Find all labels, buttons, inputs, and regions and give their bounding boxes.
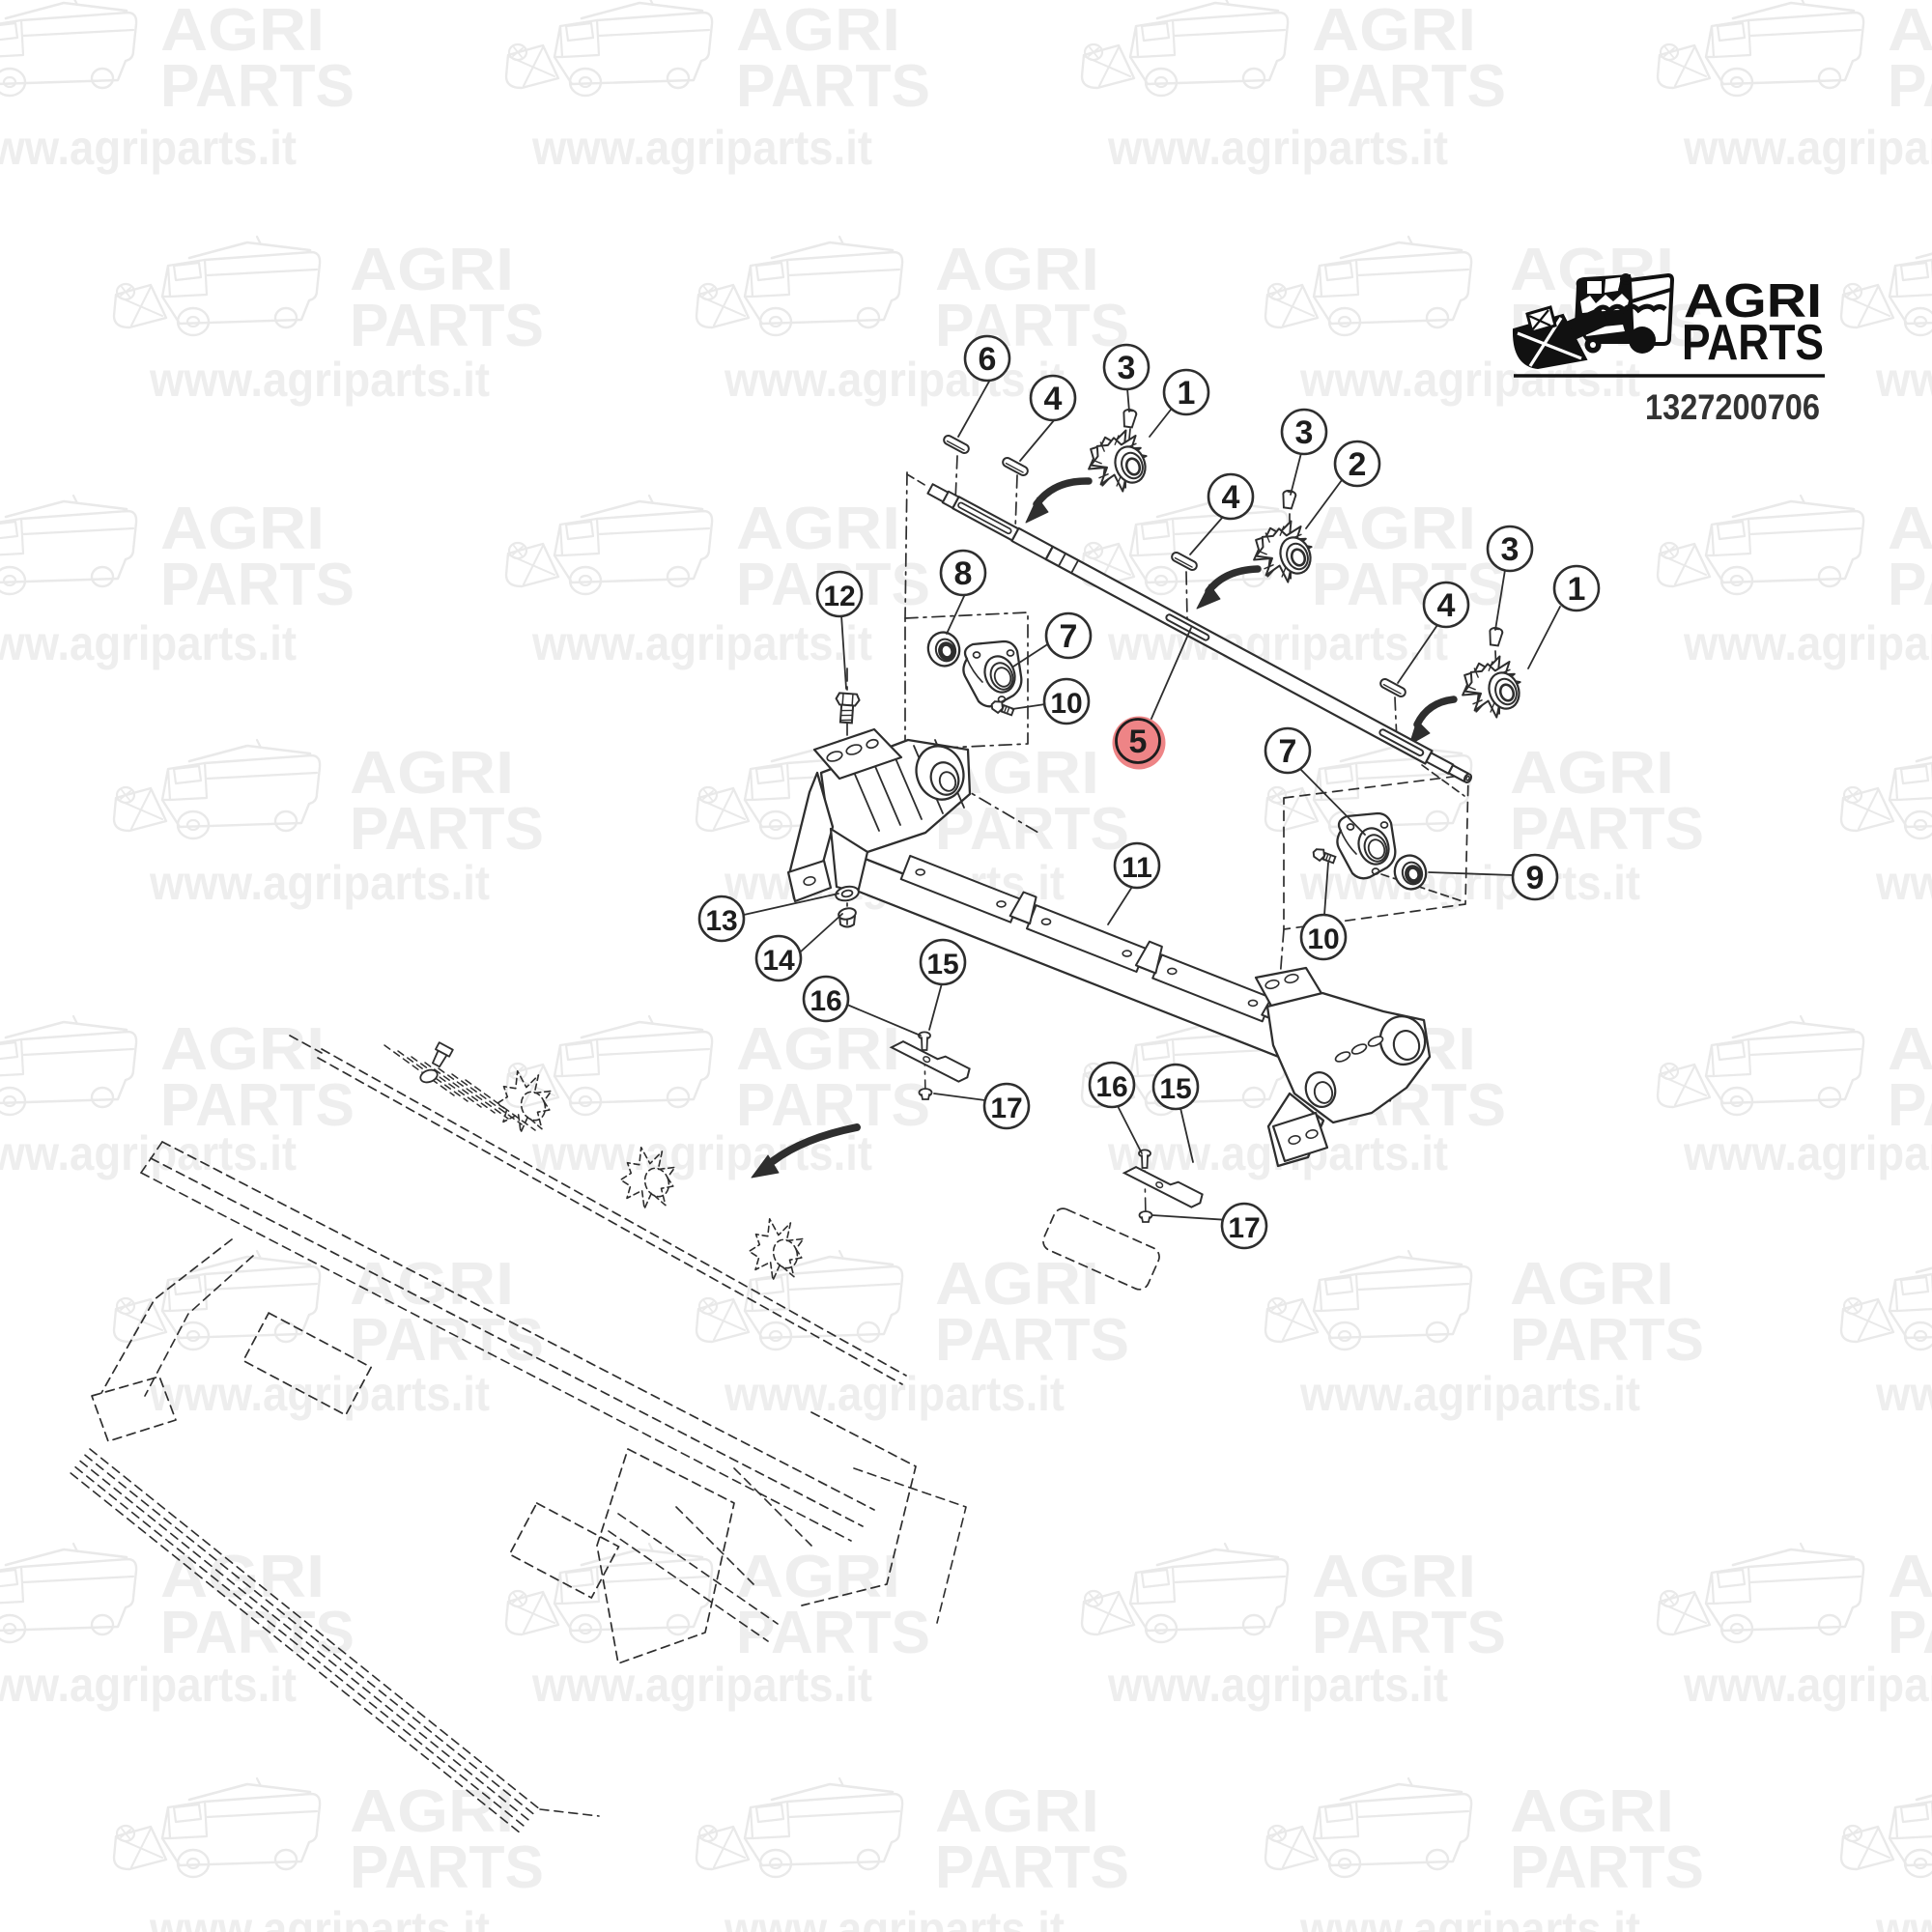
svg-text:www.agriparts.it: www.agriparts.it — [149, 1367, 490, 1421]
svg-text:www.agriparts.it: www.agriparts.it — [1107, 1658, 1448, 1712]
svg-text:www.agriparts.it: www.agriparts.it — [0, 1658, 297, 1712]
svg-text:15: 15 — [926, 949, 958, 980]
svg-text:PARTS: PARTS — [1510, 796, 1704, 863]
svg-text:5: 5 — [1129, 724, 1148, 760]
svg-text:16: 16 — [1095, 1071, 1127, 1103]
svg-text:www.agriparts.it: www.agriparts.it — [149, 353, 490, 407]
svg-text:PARTS: PARTS — [1312, 552, 1506, 618]
svg-text:www.agriparts.it: www.agriparts.it — [1683, 616, 1932, 670]
svg-text:2: 2 — [1349, 446, 1367, 483]
svg-text:www.agriparts.it: www.agriparts.it — [149, 856, 490, 910]
svg-text:7: 7 — [1279, 733, 1297, 770]
svg-text:8: 8 — [954, 555, 973, 592]
svg-text:17: 17 — [990, 1093, 1022, 1124]
svg-text:PARTS: PARTS — [1510, 1834, 1704, 1901]
svg-text:PARTS: PARTS — [160, 1600, 355, 1666]
svg-text:www.agriparts.it: www.agriparts.it — [1875, 856, 1932, 910]
svg-text:10: 10 — [1050, 688, 1082, 720]
svg-text:15: 15 — [1159, 1073, 1191, 1105]
svg-text:www.agriparts.it: www.agriparts.it — [0, 1126, 297, 1180]
svg-text:www.agriparts.it: www.agriparts.it — [531, 121, 872, 175]
svg-text:www.agriparts.it: www.agriparts.it — [1875, 1367, 1932, 1421]
svg-text:PARTS: PARTS — [935, 1834, 1129, 1901]
svg-text:PARTS: PARTS — [1888, 53, 1932, 120]
svg-text:PARTS: PARTS — [1888, 1600, 1932, 1666]
svg-text:PARTS: PARTS — [736, 1600, 930, 1666]
svg-text:16: 16 — [810, 985, 841, 1017]
svg-text:www.agriparts.it: www.agriparts.it — [1683, 1658, 1932, 1712]
svg-text:PARTS: PARTS — [1888, 552, 1932, 618]
svg-text:6: 6 — [979, 341, 997, 378]
svg-text:12: 12 — [823, 581, 855, 612]
svg-text:www.agriparts.it: www.agriparts.it — [1299, 1367, 1640, 1421]
svg-text:PARTS: PARTS — [160, 552, 355, 618]
svg-text:www.agriparts.it: www.agriparts.it — [1299, 353, 1640, 407]
svg-text:11: 11 — [1122, 852, 1152, 884]
svg-text:www.agriparts.it: www.agriparts.it — [0, 121, 297, 175]
svg-text:www.agriparts.it: www.agriparts.it — [0, 616, 297, 670]
svg-text:PARTS: PARTS — [350, 1307, 544, 1374]
svg-text:PARTS: PARTS — [1682, 315, 1824, 371]
svg-text:3: 3 — [1295, 414, 1314, 451]
svg-text:13: 13 — [705, 905, 737, 937]
svg-text:www.agriparts.it: www.agriparts.it — [724, 353, 1065, 407]
svg-text:www.agriparts.it: www.agriparts.it — [1875, 1902, 1932, 1932]
svg-text:www.agriparts.it: www.agriparts.it — [531, 1658, 872, 1712]
svg-text:www.agriparts.it: www.agriparts.it — [724, 1902, 1065, 1932]
svg-text:7: 7 — [1060, 618, 1078, 655]
svg-text:www.agriparts.it: www.agriparts.it — [1299, 1902, 1640, 1932]
svg-text:17: 17 — [1228, 1212, 1260, 1244]
svg-text:www.agriparts.it: www.agriparts.it — [1107, 616, 1448, 670]
svg-text:1327200706: 1327200706 — [1645, 387, 1820, 427]
svg-text:PARTS: PARTS — [160, 53, 355, 120]
svg-text:www.agriparts.it: www.agriparts.it — [1107, 121, 1448, 175]
svg-text:14: 14 — [762, 945, 795, 977]
svg-text:www.agriparts.it: www.agriparts.it — [724, 1367, 1065, 1421]
svg-text:PARTS: PARTS — [736, 53, 930, 120]
svg-text:PARTS: PARTS — [350, 796, 544, 863]
svg-text:PARTS: PARTS — [1312, 1600, 1506, 1666]
svg-text:PARTS: PARTS — [935, 293, 1129, 359]
svg-text:3: 3 — [1118, 350, 1136, 386]
svg-text:PARTS: PARTS — [1312, 53, 1506, 120]
svg-text:www.agriparts.it: www.agriparts.it — [149, 1902, 490, 1932]
svg-text:4: 4 — [1222, 479, 1240, 516]
svg-text:PARTS: PARTS — [1510, 1307, 1704, 1374]
svg-text:1: 1 — [1178, 375, 1196, 412]
svg-text:PARTS: PARTS — [935, 1307, 1129, 1374]
svg-text:4: 4 — [1437, 587, 1456, 624]
svg-text:www.agriparts.it: www.agriparts.it — [1683, 1126, 1932, 1180]
svg-text:PARTS: PARTS — [350, 1834, 544, 1901]
svg-text:4: 4 — [1044, 381, 1063, 417]
svg-text:3: 3 — [1501, 531, 1520, 568]
svg-text:PARTS: PARTS — [350, 293, 544, 359]
svg-text:10: 10 — [1307, 923, 1339, 955]
svg-text:www.agriparts.it: www.agriparts.it — [1875, 353, 1932, 407]
svg-text:1: 1 — [1568, 571, 1586, 608]
svg-text:www.agriparts.it: www.agriparts.it — [1683, 121, 1932, 175]
svg-text:www.agriparts.it: www.agriparts.it — [531, 616, 872, 670]
svg-text:9: 9 — [1526, 860, 1545, 896]
